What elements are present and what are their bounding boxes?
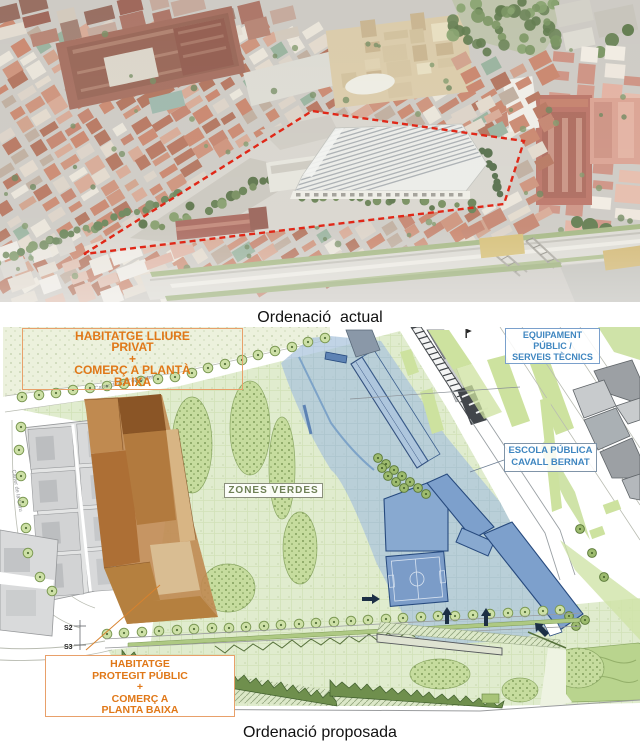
svg-text:S3: S3 [64, 644, 73, 651]
svg-text:S2: S2 [64, 625, 73, 632]
